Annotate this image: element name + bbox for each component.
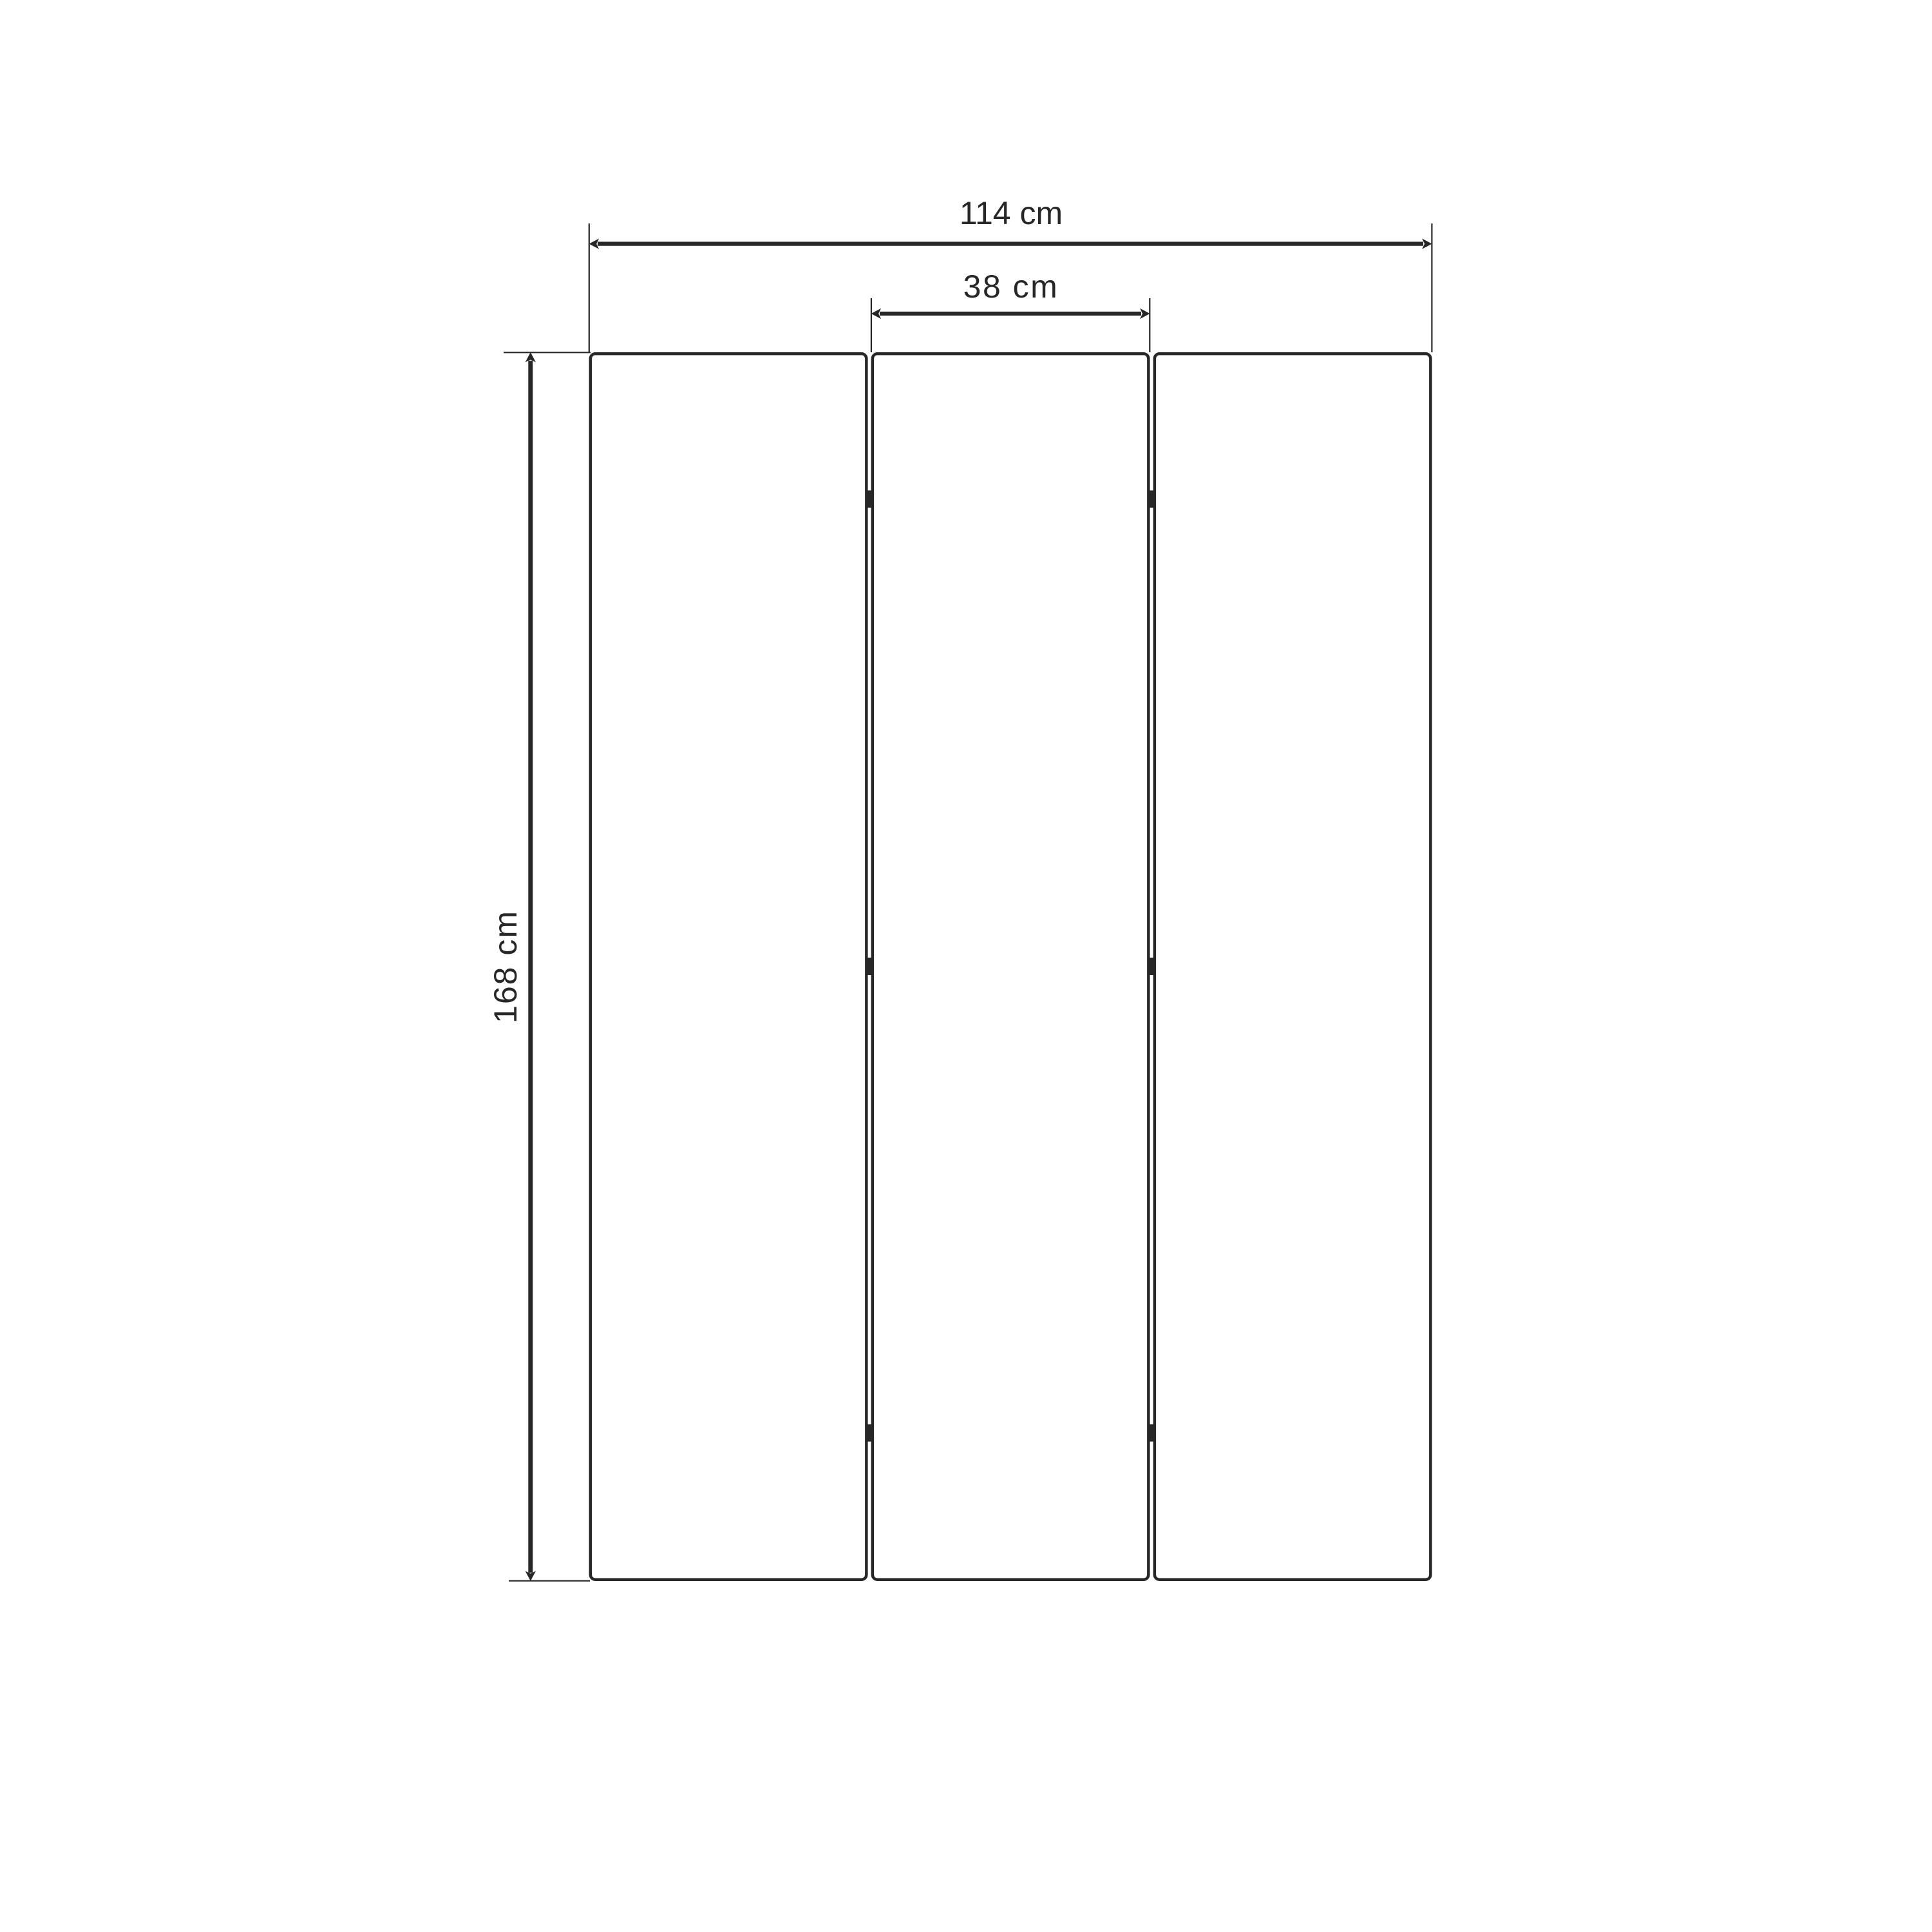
svg-text:114 cm: 114 cm bbox=[960, 195, 1063, 231]
svg-text:38 cm: 38 cm bbox=[963, 269, 1059, 305]
svg-text:168 cm: 168 cm bbox=[488, 910, 524, 1023]
